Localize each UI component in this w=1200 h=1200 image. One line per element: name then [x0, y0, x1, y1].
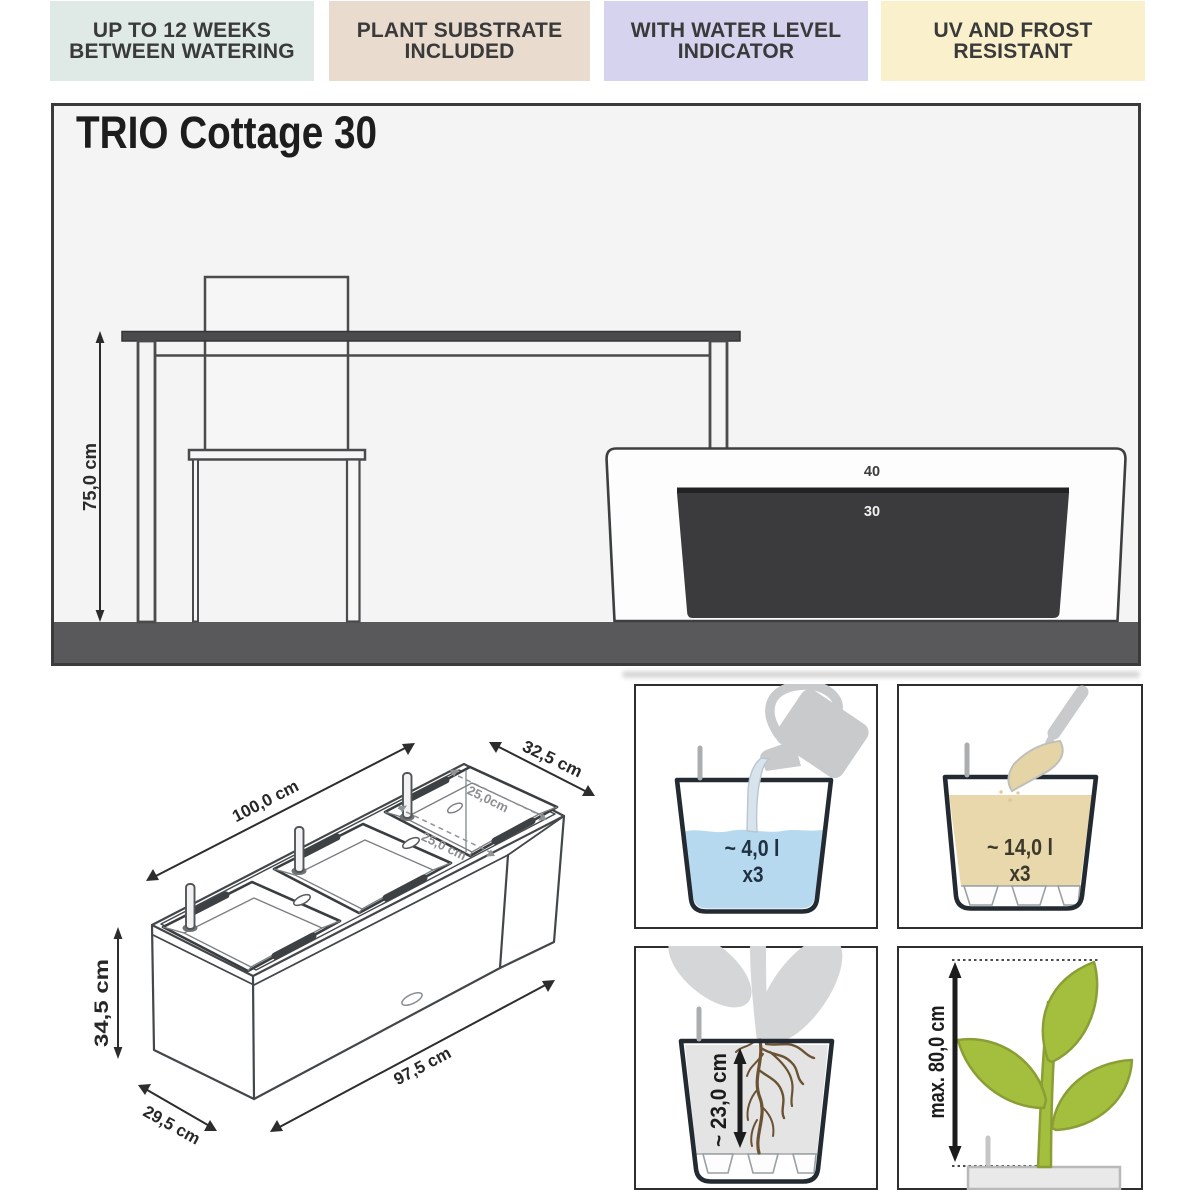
svg-text:max. 80,0 cm: max. 80,0 cm — [924, 1006, 949, 1119]
svg-text:~ 23,0 cm: ~ 23,0 cm — [706, 1053, 731, 1147]
svg-text:34,5 cm: 34,5 cm — [92, 959, 113, 1047]
svg-text:~ 14,0 l: ~ 14,0 l — [987, 834, 1053, 860]
svg-text:x3: x3 — [743, 862, 764, 887]
svg-text:75,0 cm: 75,0 cm — [80, 443, 100, 511]
svg-text:29,5 cm: 29,5 cm — [140, 1102, 203, 1149]
svg-text:40: 40 — [864, 464, 880, 480]
svg-text:x3: x3 — [1010, 861, 1031, 886]
svg-text:100,0 cm: 100,0 cm — [229, 776, 302, 826]
svg-text:30: 30 — [864, 504, 880, 520]
svg-text:~ 4,0 l: ~ 4,0 l — [725, 835, 780, 861]
